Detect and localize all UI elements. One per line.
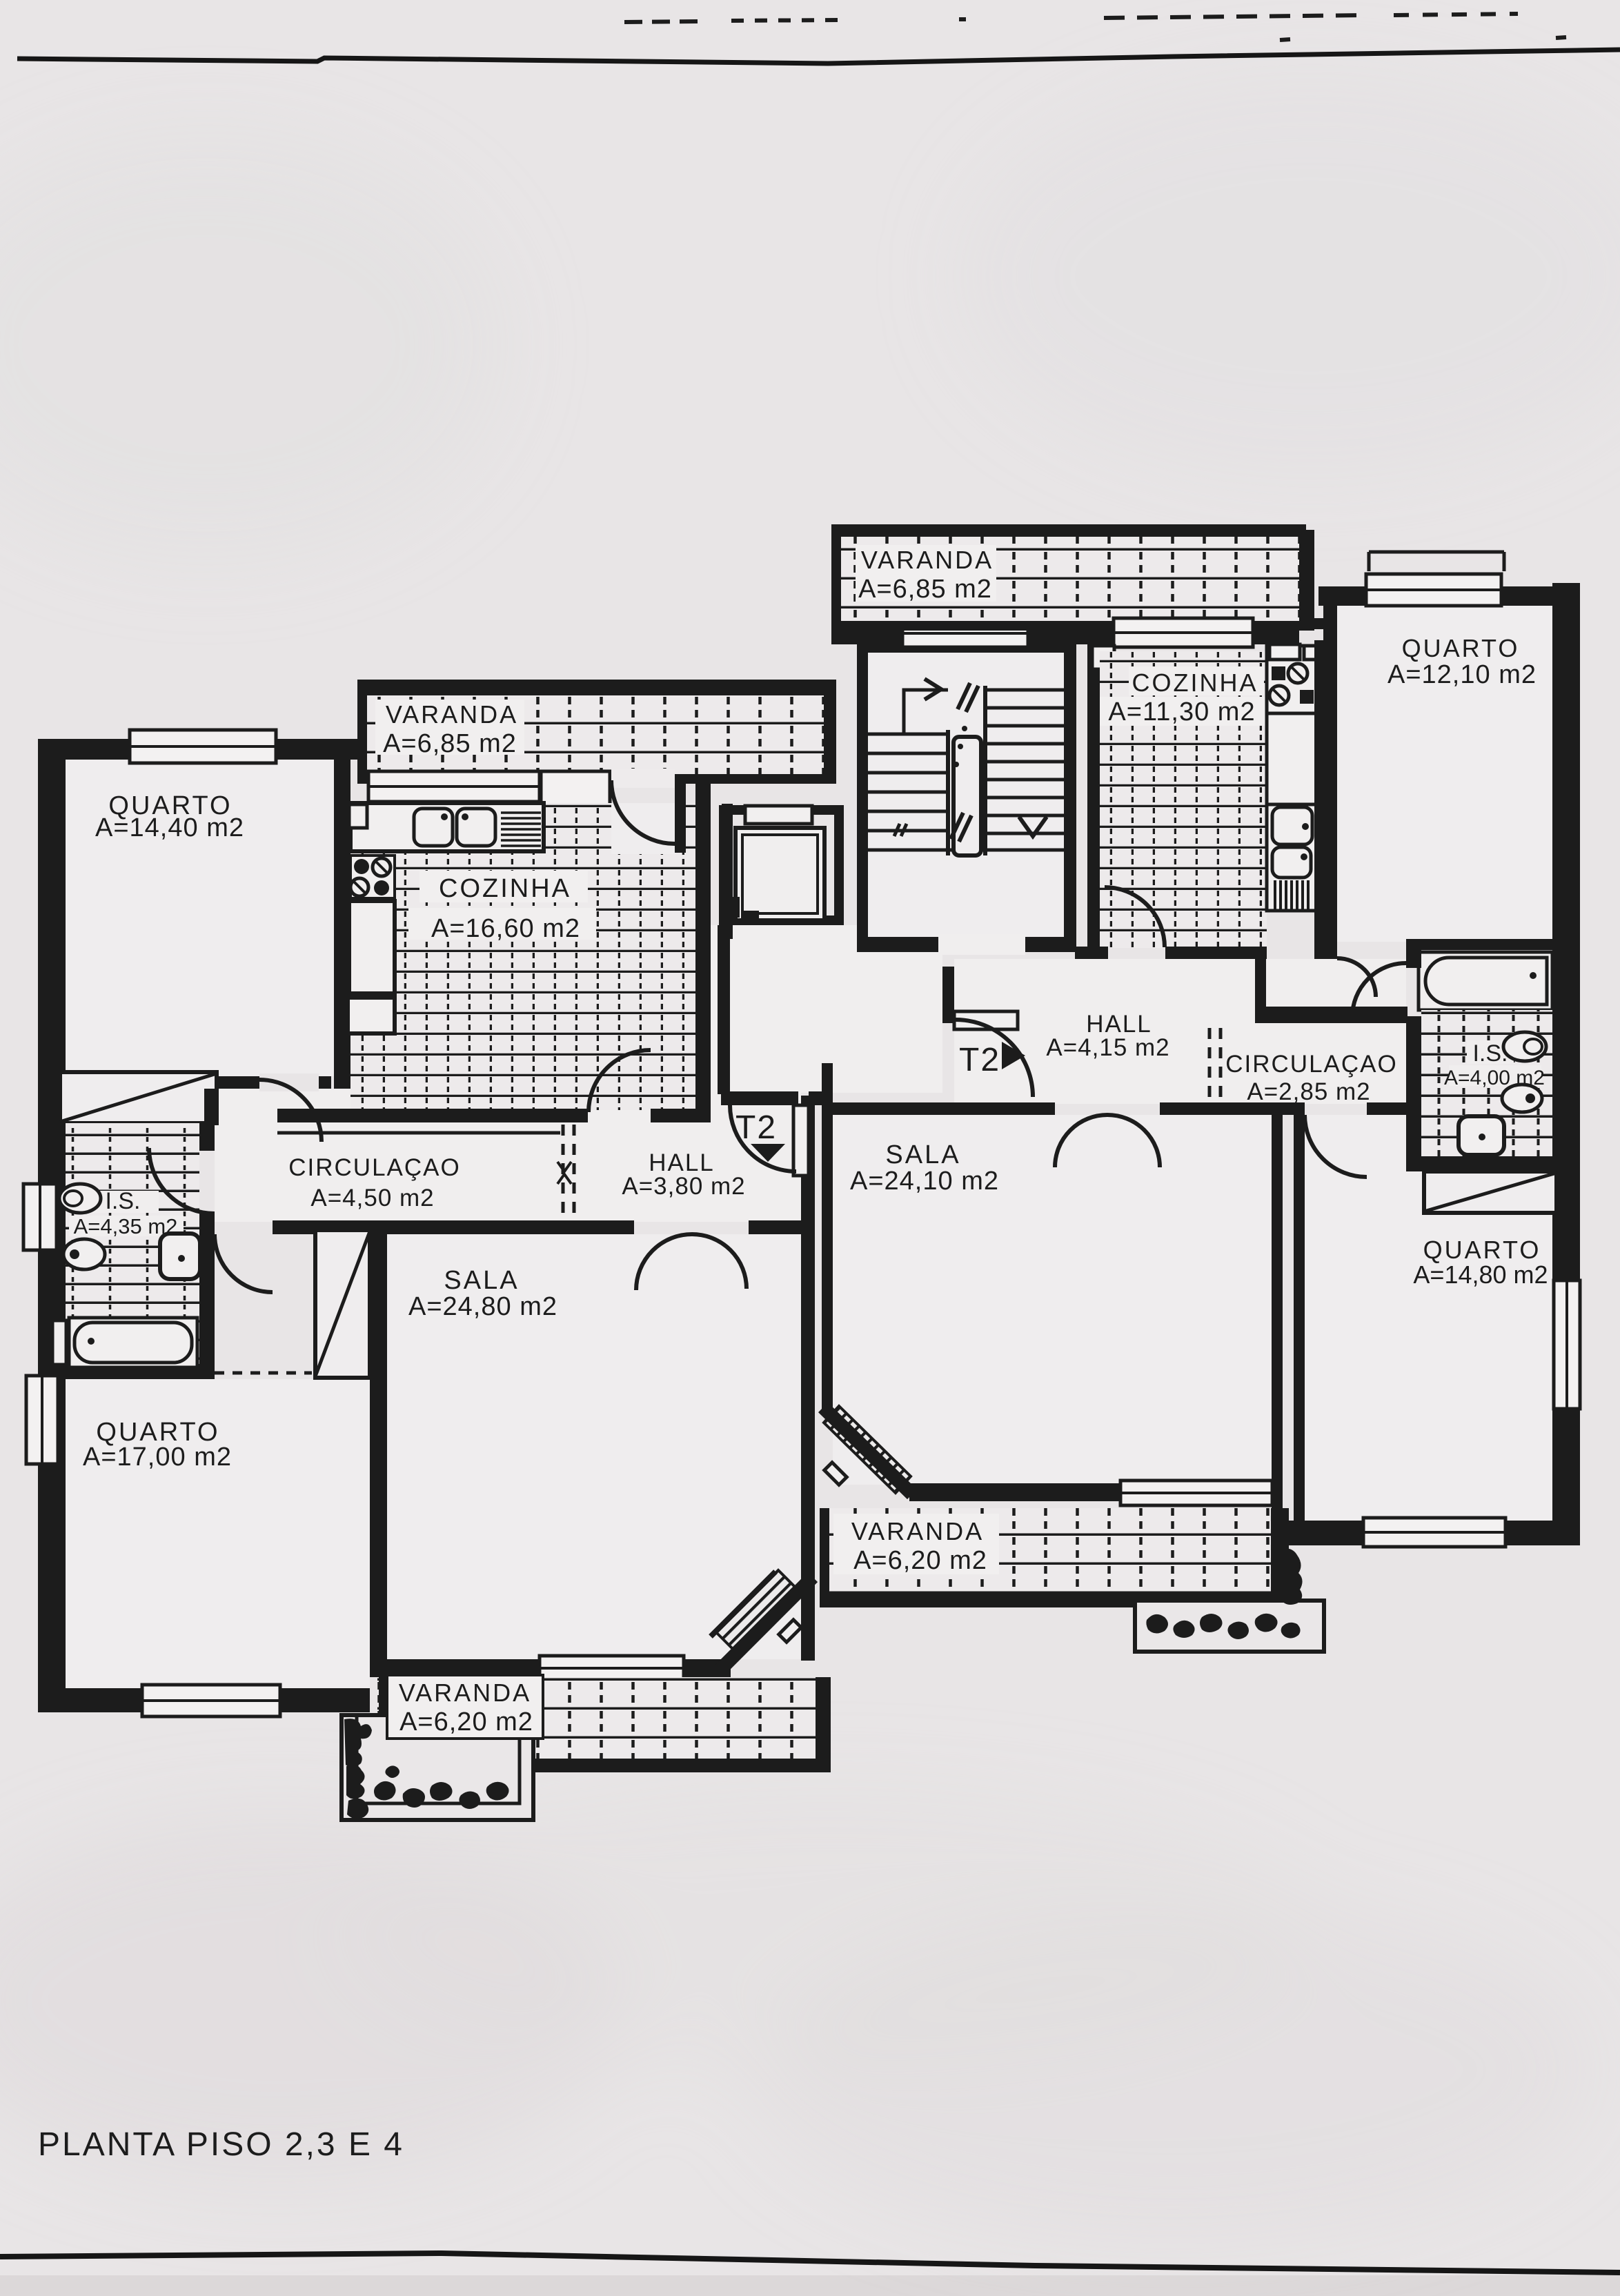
svg-text:PLANTA PISO 2,3 E 4: PLANTA PISO 2,3 E 4 <box>38 2126 404 2163</box>
svg-text:QUARTO: QUARTO <box>1423 1236 1541 1264</box>
svg-text:T2: T2 <box>735 1109 777 1146</box>
svg-text:I.S.: I.S. <box>105 1188 140 1214</box>
svg-text:T2: T2 <box>959 1042 1000 1078</box>
svg-text:A=12,10 m2: A=12,10 m2 <box>1387 660 1537 689</box>
svg-text:A=2,85 m2: A=2,85 m2 <box>1247 1078 1370 1105</box>
svg-text:A=4,50 m2: A=4,50 m2 <box>310 1185 434 1211</box>
svg-text:A=3,80 m2: A=3,80 m2 <box>622 1173 745 1200</box>
svg-text:A=16,60 m2: A=16,60 m2 <box>431 914 580 943</box>
svg-text:A=4,15 m2: A=4,15 m2 <box>1046 1034 1169 1061</box>
svg-text:VARANDA: VARANDA <box>399 1679 531 1707</box>
svg-text:CIRCULAÇAO: CIRCULAÇAO <box>1225 1051 1397 1078</box>
svg-text:A=17,00 m2: A=17,00 m2 <box>83 1443 232 1472</box>
svg-text:A=6,85 m2: A=6,85 m2 <box>383 729 517 758</box>
svg-text:COZINHA: COZINHA <box>1132 669 1258 697</box>
svg-text:SALA: SALA <box>444 1266 519 1295</box>
svg-text:QUARTO: QUARTO <box>1402 634 1520 662</box>
svg-text:CIRCULAÇAO: CIRCULAÇAO <box>288 1154 460 1181</box>
svg-text:A=11,30 m2: A=11,30 m2 <box>1108 697 1255 726</box>
svg-text:VARANDA: VARANDA <box>861 546 994 574</box>
svg-text:A=24,80 m2: A=24,80 m2 <box>408 1292 557 1321</box>
svg-text:SALA: SALA <box>885 1140 960 1169</box>
svg-text:COZINHA: COZINHA <box>439 874 571 903</box>
svg-text:A=14,40 m2: A=14,40 m2 <box>95 813 244 842</box>
svg-text:A=6,85 m2: A=6,85 m2 <box>858 575 992 604</box>
svg-text:A=14,80 m2: A=14,80 m2 <box>1413 1260 1548 1289</box>
svg-text:A=6,20 m2: A=6,20 m2 <box>853 1546 987 1575</box>
svg-text:VARANDA: VARANDA <box>386 700 518 729</box>
svg-text:A=24,10 m2: A=24,10 m2 <box>850 1167 999 1196</box>
svg-text:VARANDA: VARANDA <box>851 1517 984 1545</box>
svg-text:A=6,20 m2: A=6,20 m2 <box>399 1708 533 1736</box>
